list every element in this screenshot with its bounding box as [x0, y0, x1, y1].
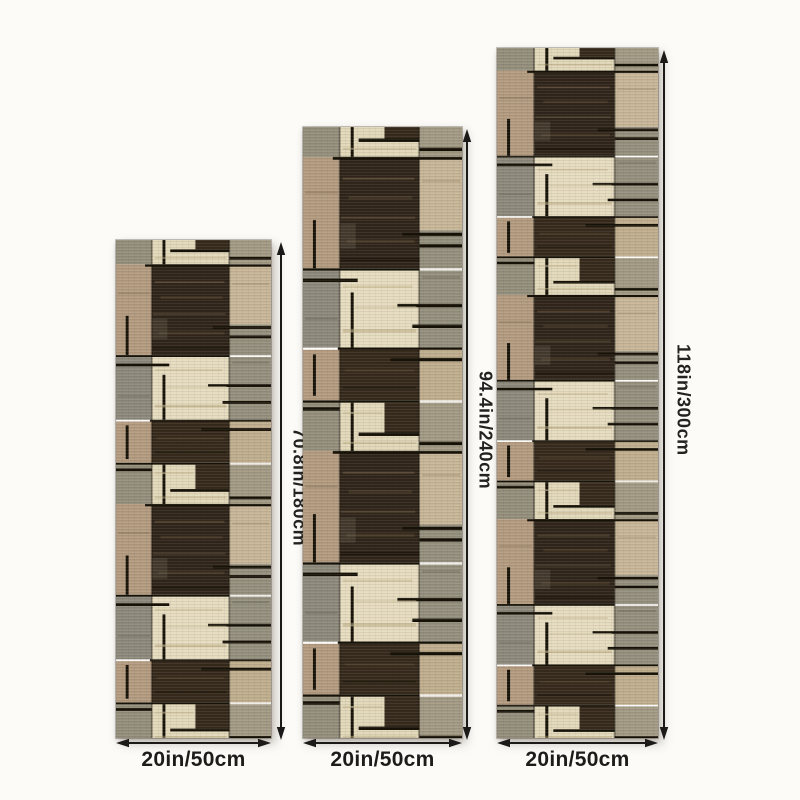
- width-dimension-label: 20in/50cm: [295, 748, 470, 772]
- rug-pattern-large: [497, 48, 658, 738]
- rug-image-small: [116, 240, 271, 738]
- length-dimension-arrow-icon: [657, 50, 671, 740]
- rug-image-medium: [303, 127, 462, 738]
- length-dimension-label: 94.4in/240cm: [473, 345, 497, 515]
- length-dimension-arrow-icon: [460, 129, 474, 740]
- length-dimension-label: 118in/300cm: [671, 315, 695, 485]
- rug-pattern-medium: [303, 127, 462, 738]
- width-dimension-label: 20in/50cm: [489, 748, 666, 772]
- width-dimension-label: 20in/50cm: [108, 748, 279, 772]
- rug-image-large: [497, 48, 658, 738]
- rug-pattern-small: [116, 240, 271, 738]
- rug-size-comparison-image: 70.8in/180cm 20in/50cm 94.4in/240cm 20in…: [0, 0, 800, 800]
- length-dimension-arrow-icon: [274, 242, 288, 740]
